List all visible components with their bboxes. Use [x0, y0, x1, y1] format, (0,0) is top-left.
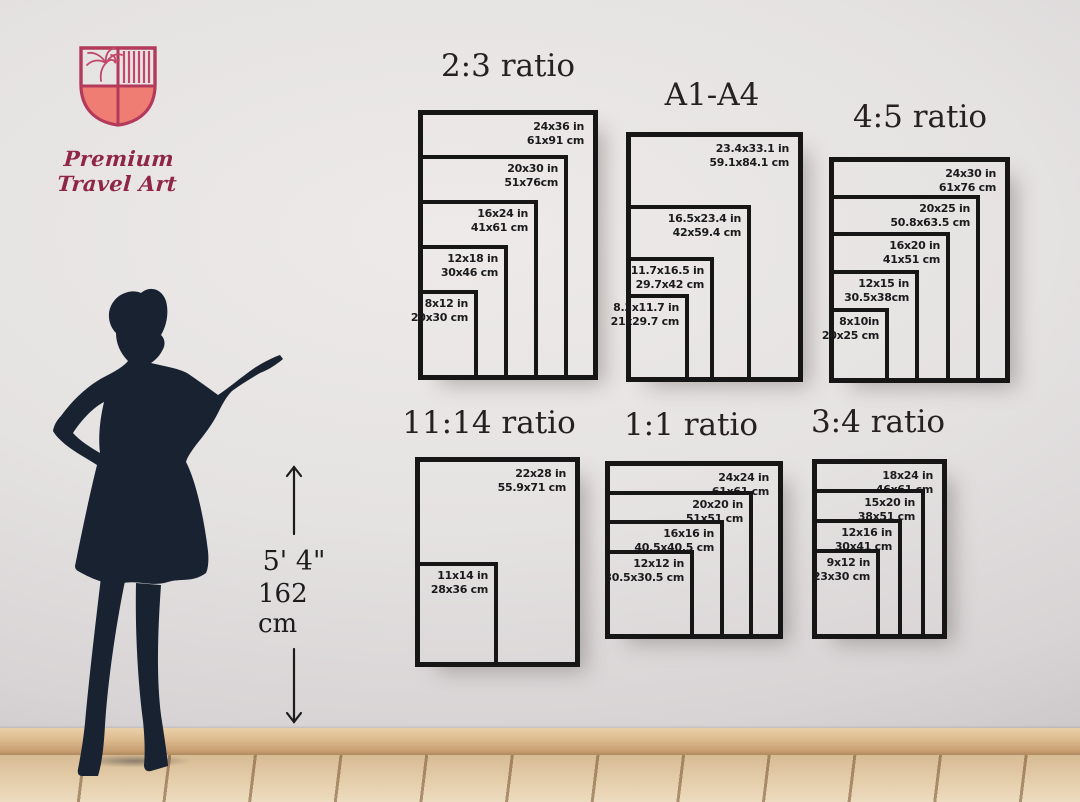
size-group-11-14: 22x28 in55.9x71 cm11x14 in28x36 cm: [415, 457, 580, 667]
size-box: 12x12 in30.5x30.5 cm: [605, 550, 694, 639]
size-label: 24x30 in61x76 cm: [939, 167, 996, 194]
size-group-3-4: 18x24 in46x61 cm15x20 in38x51 cm12x16 in…: [812, 459, 947, 639]
size-label: 16x20 in41x51 cm: [883, 239, 940, 266]
size-inches: 16x16 in: [634, 527, 714, 541]
size-centimeters: 61x91 cm: [527, 134, 584, 148]
size-label: 9x12 in23x30 cm: [813, 556, 870, 583]
size-centimeters: 59.1x84.1 cm: [709, 156, 789, 170]
poster-size-chart: Premium Travel Art 5' 4" 162 cm 2:3 rati…: [0, 0, 1080, 802]
height-marker: 5' 4" 162 cm: [258, 464, 330, 725]
size-inches: 12x18 in: [441, 252, 498, 266]
size-group-1-1: 24x24 in61x61 cm20x20 in51x51 cm16x16 in…: [605, 461, 783, 639]
size-inches: 8.3x11.7 in: [611, 301, 679, 315]
size-centimeters: 30.5x38cm: [844, 291, 909, 305]
size-inches: 9x12 in: [813, 556, 870, 570]
brand-logo: Premium Travel Art: [26, 42, 210, 196]
size-box: 8x12 in20x30 cm: [418, 290, 478, 380]
shield-crest-icon: [74, 42, 162, 130]
size-label: 12x12 in30.5x30.5 cm: [604, 557, 684, 584]
height-cm: 162 cm: [258, 579, 330, 639]
size-label: 22x28 in55.9x71 cm: [498, 467, 566, 494]
size-centimeters: 50.8x63.5 cm: [890, 216, 970, 230]
size-label: 8.3x11.7 in21x29.7 cm: [611, 301, 679, 328]
brand-name: Premium Travel Art: [24, 146, 211, 196]
size-centimeters: 55.9x71 cm: [498, 481, 566, 495]
size-inches: 16.5x23.4 in: [668, 212, 741, 226]
size-box: 8.3x11.7 in21x29.7 cm: [626, 294, 689, 382]
size-label: 16x24 in41x61 cm: [471, 207, 528, 234]
size-centimeters: 20x30 cm: [411, 311, 468, 325]
size-inches: 20x30 in: [504, 162, 558, 176]
size-centimeters: 21x29.7 cm: [611, 315, 679, 329]
size-inches: 12x16 in: [835, 526, 892, 540]
size-inches: 16x20 in: [883, 239, 940, 253]
size-inches: 12x12 in: [604, 557, 684, 571]
arrow-down-icon: [283, 647, 305, 725]
size-inches: 8x12 in: [411, 297, 468, 311]
size-centimeters: 23x30 cm: [813, 570, 870, 584]
size-label: 20x30 in51x76cm: [504, 162, 558, 189]
size-label: 8x12 in20x30 cm: [411, 297, 468, 324]
size-centimeters: 29.7x42 cm: [631, 278, 704, 292]
size-centimeters: 42x59.4 cm: [668, 226, 741, 240]
size-inches: 24x24 in: [712, 471, 769, 485]
woman-silhouette: [40, 283, 288, 777]
size-inches: 20x20 in: [686, 498, 743, 512]
size-label: 11.7x16.5 in29.7x42 cm: [631, 264, 704, 291]
size-centimeters: 30.5x30.5 cm: [604, 571, 684, 585]
size-inches: 22x28 in: [498, 467, 566, 481]
height-feet: 5' 4": [263, 546, 326, 577]
arrow-up-icon: [283, 464, 305, 536]
size-inches: 15x20 in: [858, 496, 915, 510]
size-group-2-3: 24x36 in61x91 cm20x30 in51x76cm16x24 in4…: [418, 110, 598, 380]
group-title: A1-A4: [665, 77, 760, 113]
size-centimeters: 41x61 cm: [471, 221, 528, 235]
size-label: 12x15 in30.5x38cm: [844, 277, 909, 304]
size-centimeters: 28x36 cm: [431, 583, 488, 597]
group-title: 3:4 ratio: [811, 404, 945, 440]
size-inches: 11x14 in: [431, 569, 488, 583]
size-label: 23.4x33.1 in59.1x84.1 cm: [709, 142, 789, 169]
size-label: 16.5x23.4 in42x59.4 cm: [668, 212, 741, 239]
size-label: 12x18 in30x46 cm: [441, 252, 498, 279]
size-centimeters: 20x25 cm: [822, 329, 879, 343]
size-inches: 24x30 in: [939, 167, 996, 181]
size-box: 11x14 in28x36 cm: [415, 562, 498, 667]
group-title: 11:14 ratio: [402, 405, 576, 441]
size-centimeters: 30x46 cm: [441, 266, 498, 280]
size-label: 11x14 in28x36 cm: [431, 569, 488, 596]
size-box: 8x10in20x25 cm: [829, 308, 889, 383]
size-inches: 23.4x33.1 in: [709, 142, 789, 156]
size-inches: 11.7x16.5 in: [631, 264, 704, 278]
size-group-4-5: 24x30 in61x76 cm20x25 in50.8x63.5 cm16x2…: [829, 157, 1010, 383]
size-centimeters: 41x51 cm: [883, 253, 940, 267]
size-centimeters: 61x76 cm: [939, 181, 996, 195]
group-title: 1:1 ratio: [624, 407, 758, 443]
size-inches: 8x10in: [822, 315, 879, 329]
size-box: 9x12 in23x30 cm: [812, 549, 880, 639]
size-inches: 24x36 in: [527, 120, 584, 134]
group-title: 2:3 ratio: [441, 48, 575, 84]
group-title: 4:5 ratio: [853, 99, 987, 135]
size-label: 20x25 in50.8x63.5 cm: [890, 202, 970, 229]
size-inches: 16x24 in: [471, 207, 528, 221]
size-group-a1-a4: 23.4x33.1 in59.1x84.1 cm16.5x23.4 in42x5…: [626, 132, 803, 382]
size-label: 8x10in20x25 cm: [822, 315, 879, 342]
size-centimeters: 51x76cm: [504, 176, 558, 190]
size-inches: 12x15 in: [844, 277, 909, 291]
size-inches: 20x25 in: [890, 202, 970, 216]
size-label: 24x36 in61x91 cm: [527, 120, 584, 147]
size-inches: 18x24 in: [876, 469, 933, 483]
